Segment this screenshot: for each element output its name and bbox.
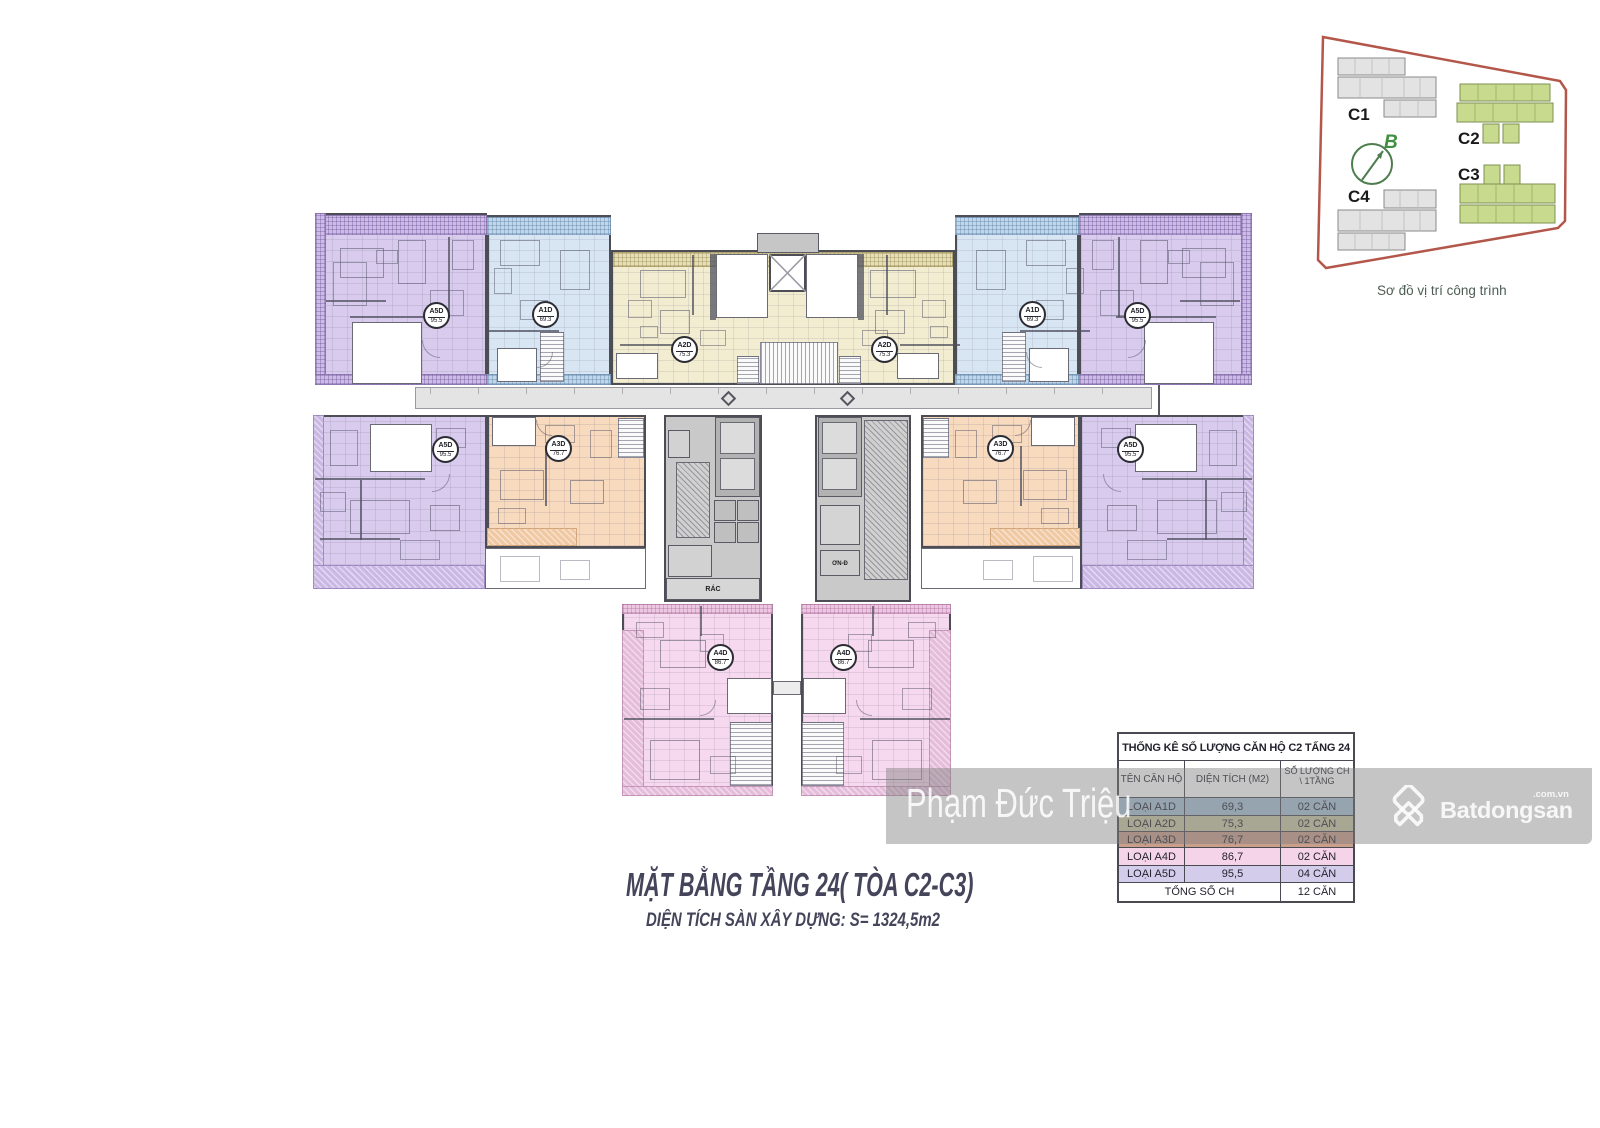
svg-text:C3: C3 bbox=[1458, 165, 1480, 184]
svg-text:C1: C1 bbox=[1348, 105, 1370, 124]
svg-text:C4: C4 bbox=[1348, 187, 1370, 206]
svg-text:C2: C2 bbox=[1458, 129, 1480, 148]
svg-text:B: B bbox=[1384, 132, 1398, 153]
